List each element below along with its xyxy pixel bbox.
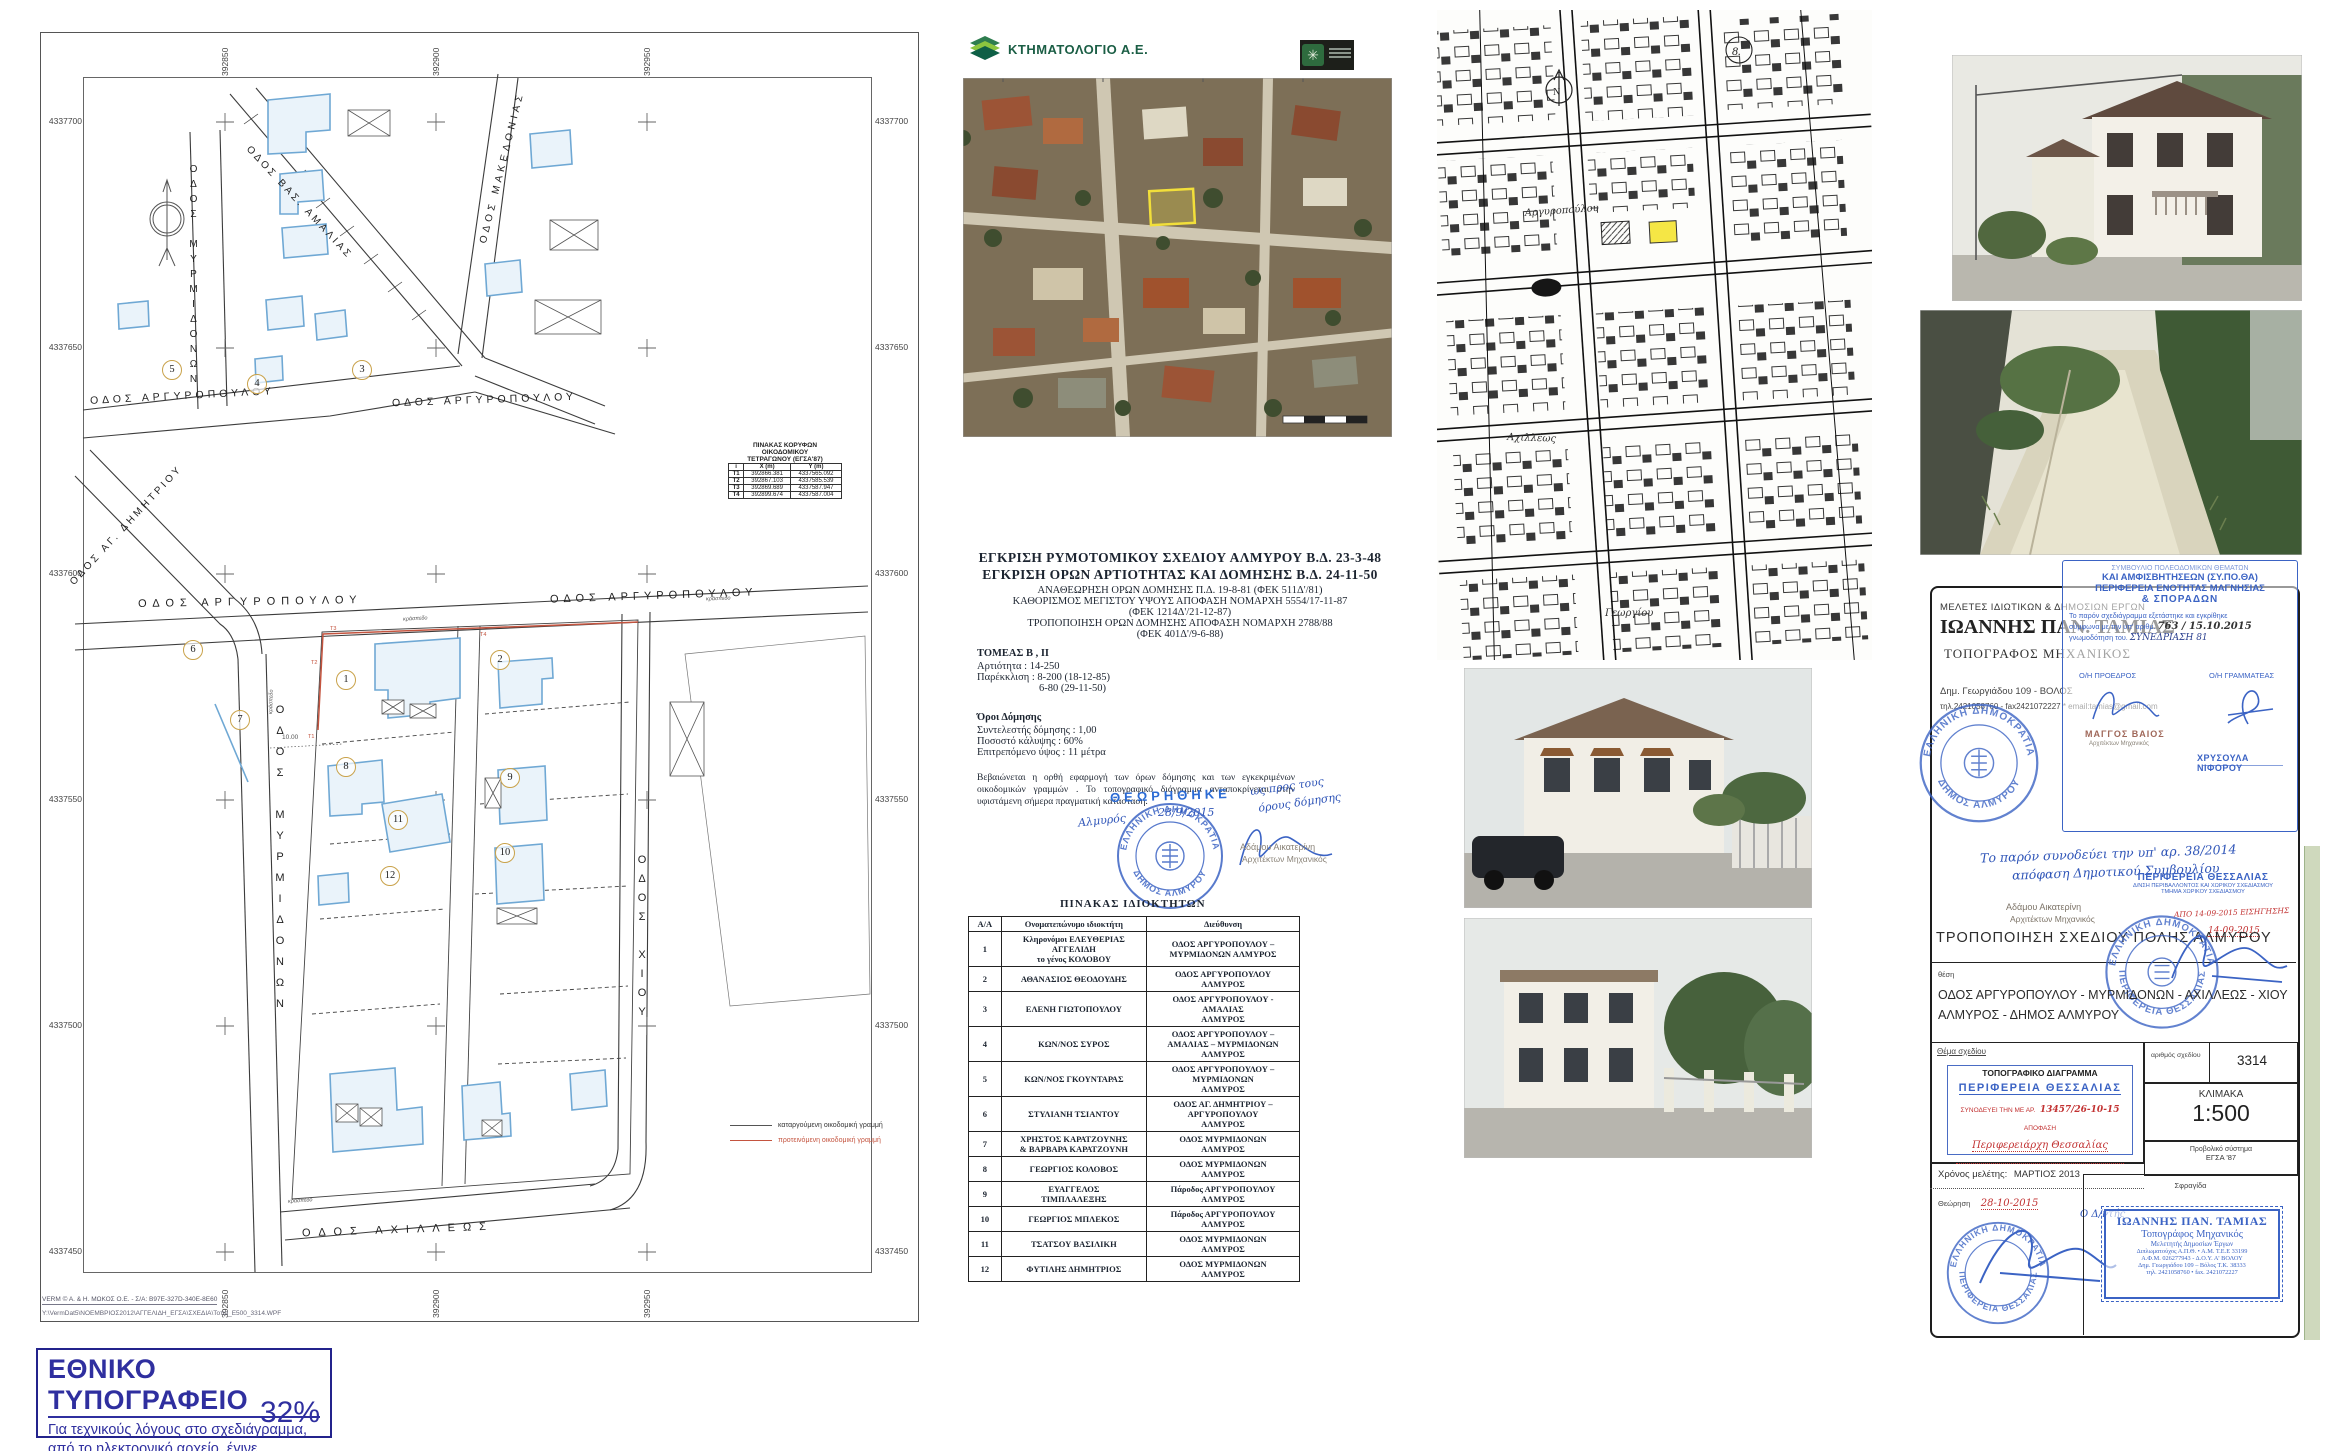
thessaly-directorate-stamp: ΠΕΡΙΦΕΡΕΙΑ ΘΕΣΣΑΛΙΑΣ Δ/ΝΣΗ ΠΕΡΙΒΑΛΛΟΝΤΟΣ…: [2118, 872, 2288, 895]
svg-text:T2: T2: [311, 660, 317, 666]
topo-stamp-line4: ΑΠΟΦΑΣΗ: [2024, 1125, 2056, 1132]
reviewer-title: Αρχιτέκτων Μηχανικός: [1242, 854, 1327, 864]
ministry-logo: ✳: [1300, 40, 1354, 70]
print-note-line2: από το ηλεκτρονικό αρχείο, έγινε: [48, 1441, 258, 1451]
terms-line-1: Συντελεστής δόμησης : 1,00: [977, 725, 1106, 736]
owner-row: 7ΧΡΗΣΤΟΣ ΚΑΡΑΤΖΟΥΝΗΣ & ΒΑΡΒΑΡΑ ΚΑΡΑΤΖΟΥΝ…: [969, 1132, 1300, 1157]
sypotha-body-1: Το παρόν σχεδιάγραμμα εξετάστηκε και εγκ…: [2069, 611, 2291, 620]
owner-row: 3ΕΛΕΝΗ ΓΙΩΤΟΠΟΥΛΟΥΟΔΟΣ ΑΡΓΥΡΟΠΟΥΛΟΥ - ΑΜ…: [969, 992, 1300, 1027]
municipality-round-stamp: ΕΛΛΗΝΙΚΗ ΔΗΜΟΚΡΑΤΙΑ ΔΗΜΟΣ ΑΛΜΥΡΟΥ: [1112, 798, 1228, 914]
thessaly-stamp-line3: ΤΜΗΜΑ ΧΩΡΙΚΟΥ ΣΧΕΔΙΑΣΜΟΥ: [2118, 889, 2288, 895]
topo-stamp-line1: ΤΟΠΟΓΡΑΦΙΚΟ ΔΙΑΓΡΑΜΜΑ: [1948, 1068, 2132, 1078]
photo-house-fence: [1464, 918, 1812, 1158]
sector-line-1: Αρτιότητα : 14-250: [977, 661, 1110, 672]
cadastral-street-label-2: Αχιλλέως: [1506, 432, 1557, 445]
plot-number-4: 4: [247, 374, 267, 394]
owner-row: 4ΚΩΝ/ΝΟΣ ΣΥΡΟΣΟΔΟΣ ΑΡΓΥΡΟΠΟΥΛΟΥ – ΑΜΑΛΙΑ…: [969, 1027, 1300, 1062]
sheet-edge-strip: [2304, 846, 2320, 1340]
seal-line7: τηλ. 2421058760 • fax. 2421072227: [2106, 1269, 2278, 1276]
scale-value: 1:500: [2145, 1100, 2297, 1127]
engineer-seal: ΙΩΑΝΝΗΣ ΠΑΝ. ΤΑΜΙΑΣ Τοπογράφος Μηχανικός…: [2104, 1209, 2280, 1299]
owner-row: 10ΓΕΩΡΓΙΟΣ ΜΠΛΕΚΟΣΠάροδος ΑΡΓΥΡΟΠΟΥΛΟΥ Α…: [969, 1207, 1300, 1232]
sypotha-session: ΣΥΝΕΔΡΙΑΣΗ 81: [2130, 633, 2208, 643]
topo-stamp-line2: ΠΕΡΙΦΕΡΕΙΑ ΘΕΣΣΑΛΙΑΣ: [1959, 1082, 2122, 1095]
plot-number-11: 11: [388, 810, 408, 830]
map-sheet: 4337700 4337650 4337600 4337550 4337500 …: [30, 14, 925, 1332]
vertex-row: T4392899.6744337587.004: [729, 492, 842, 499]
drawing-number-cell: αριθμός σχεδίου 3314: [2144, 1042, 2298, 1084]
seal-line1: ΙΩΑΝΝΗΣ ΠΑΝ. ΤΑΜΙΑΣ: [2106, 1214, 2278, 1229]
sector-line-2: Παρέκκλιση : 8-200 (18-12-85): [977, 672, 1110, 683]
sypotha-line-3: ΠΕΡΙΦΕΡΕΙΑ ΕΝΟΤΗΤΑΣ ΜΑΓΝΗΣΙΑΣ: [2063, 583, 2297, 594]
sypotha-stamp: ΣΥΜΒΟΥΛΙΟ ΠΟΛΕΟΔΟΜΙΚΩΝ ΘΕΜΑΤΩΝ ΚΑΙ ΑΜΦΙΣ…: [2062, 560, 2298, 832]
svg-text:N: N: [1553, 87, 1560, 98]
topo-stamp-line3: ΣΥΝΟΔΕΥΕΙ ΤΗΝ ΜΕ ΑΡ.: [1961, 1107, 2036, 1114]
owners-table-title: ΠΙΝΑΚΑΣ ΙΔΙΟΚΤΗΤΩΝ: [1060, 898, 1206, 910]
sheet-footer-line1: VERM © A. & H. ΜΩΚΟΣ Ο.Ε. - Σ/Α: B97E-32…: [42, 1296, 217, 1305]
sypotha-line-2: ΚΑΙ ΑΜΦΙΣΒΗΤΗΣΕΩΝ (ΣΥ.ΠΟ.ΘΑ): [2063, 572, 2297, 583]
topo-approval-stamp: ΤΟΠΟΓΡΑΦΙΚΟ ΔΙΑΓΡΑΜΜΑ ΠΕΡΙΦΕΡΕΙΑ ΘΕΣΣΑΛΙ…: [1947, 1065, 2133, 1155]
seal-label: Σφραγίδα: [2084, 1181, 2297, 1190]
vertex-row: T1392866.3814337565.092: [729, 471, 842, 478]
sypotha-secretary-name: ΧΡΥΣΟΥΛΑ ΝΙΦΟΡΟΥ: [2197, 753, 2297, 773]
terms-title: Όροι Δόμησης: [977, 712, 1106, 723]
scale-label: ΚΛΙΜΑΚΑ: [2145, 1089, 2297, 1100]
sheet-footer-line2: Y:\VermDat5\ΝΟΕΜΒΡΙΟΣ2012\ΑΓΓΕΛΙΔΗ_ΕΓΣΑ\…: [42, 1310, 281, 1317]
review-stamp-cluster: ΘΕΩΡΗΘΗΚΕ ως προς τους όρους δόμησης Αλμ…: [1050, 780, 1380, 910]
location-label: θέση: [1938, 970, 1954, 979]
study-value: ΜΑΡΤΙΟΣ 2013: [2014, 1169, 2080, 1180]
review-date-value: 28-10-2015: [1981, 1198, 2039, 1210]
region-signature: [2152, 918, 2292, 998]
sypotha-body-2: σύμφωνα με την υπ' αριθμ.: [2069, 622, 2156, 631]
approval-line-1: ΕΓΚΡΙΣΗ ΡΥΜΟΤΟΜΙΚΟΥ ΣΧΕΔΙΟΥ ΑΛΜΥΡΟΥ Β.Δ.…: [965, 550, 1395, 566]
sypotha-decision-number: 763 / 15.10.2015: [2158, 621, 2252, 632]
owner-row: 2ΑΘΑΝΑΣΙΟΣ ΘΕΟΔΟΥΔΗΣΟΔΟΣ ΑΡΓΥΡΟΠΟΥΛΟΥ ΑΛ…: [969, 967, 1300, 992]
vertex-table: ΠΙΝΑΚΑΣ ΚΟΡΥΦΩΝ ΟΙΚΟΔΟΜΙΚΟΥ ΤΕΤΡΑΓΩΝΟΥ (…: [728, 442, 842, 499]
photo-scalebar: [1283, 416, 1367, 423]
engineer-address: Δημ. Γεωργιάδου 109 - ΒΟΛΟΣ: [1940, 686, 2073, 697]
dim-label: 10.00: [282, 734, 298, 741]
svg-text:ΔΗΜΟΣ ΑΛΜΥΡΟΥ: ΔΗΜΟΣ ΑΛΜΥΡΟΥ: [1935, 777, 2023, 811]
subject-label: Θέμα σχεδίου: [1937, 1047, 1986, 1056]
scanned-topographic-document: 4337700 4337650 4337600 4337550 4337500 …: [0, 0, 2326, 1451]
adamou-title: Αρχιτέκτων Μηχανικός: [2010, 914, 2095, 924]
adamou-name: Αδάμου Αικατερίνη: [2006, 902, 2081, 912]
approval-line-4: ΚΑΘΟΡΙΣΜΟΣ ΜΕΓΙΣΤΟΥ ΥΨΟΥΣ ΑΠΟΦΑΣΗ ΝΟΜΑΡΧ…: [965, 596, 1395, 607]
plot-number-7: 7: [230, 710, 250, 730]
legend-line-proposed: [730, 1140, 772, 1141]
plot-number-8: 8: [336, 757, 356, 777]
terms-block: Όροι Δόμησης Συντελεστής δόμησης : 1,00 …: [977, 712, 1106, 758]
ktimatologio-logo-icon: [970, 36, 1000, 60]
cadastral-highlighted-parcel: [1649, 221, 1677, 243]
svg-text:T4: T4: [480, 632, 486, 638]
highlighted-parcel: [1149, 189, 1195, 225]
curb-label-1: κράσπεδο: [403, 615, 428, 622]
sypotha-line-1: ΣΥΜΒΟΥΛΙΟ ΠΟΛΕΟΔΟΜΙΚΩΝ ΘΕΜΑΤΩΝ: [2063, 565, 2297, 572]
cadastral-map-scan: N 8. Αργυροπούλου Αχιλλέως Γεωργίου: [1437, 10, 1872, 660]
seal-line6: Δημ. Γεωργιάδου 109 – Βόλος Τ.Κ. 38333: [2106, 1262, 2278, 1269]
sypotha-line-4: & ΣΠΟΡΑΔΩΝ: [2063, 594, 2297, 605]
projection-cell: Προβολικό σύστημα ΕΓΣΑ '87: [2144, 1140, 2298, 1176]
reviewer-name: Αδάμου Αικατερίνη: [1240, 842, 1315, 852]
study-label: Χρόνος μελέτης:: [1938, 1169, 2007, 1180]
photo-house-balcony: [1952, 55, 2302, 301]
owner-row: 12ΦΥΤΙΛΗΣ ΔΗΜΗΤΡΙΟΣΟΔΟΣ ΜΥΡΜΙΔΟΝΩΝ ΑΛΜΥΡ…: [969, 1257, 1300, 1282]
seal-cell: Σφραγίδα ΙΩΑΝΝΗΣ ΠΑΝ. ΤΑΜΙΑΣ Τοπογράφος …: [2083, 1174, 2297, 1335]
plot-number-10: 10: [495, 843, 515, 863]
terms-line-3: Επιτρεπόμενο ύψος : 11 μέτρα: [977, 747, 1106, 758]
plot-number-2: 2: [490, 650, 510, 670]
owner-row: 5ΚΩΝ/ΝΟΣ ΓΚΟΥΝΤΑΡΑΣΟΔΟΣ ΑΡΓΥΡΟΠΟΥΛΟΥ – Μ…: [969, 1062, 1300, 1097]
titleblock: ΜΕΛΕΤΕΣ ΙΔΙΩΤΙΚΩΝ & ΔΗΜΟΣΙΩΝ ΕΡΓΩΝ ΙΩΑΝΝ…: [1922, 558, 2322, 1350]
photo-house-corner: [1464, 668, 1812, 908]
ktimatologio-brand: ΚΤΗΜΑΤΟΛΟΓΙΟ Α.Ε.: [1008, 42, 1148, 57]
seal-line4: Διπλωματούχος Α.Π.Θ. • Α.Μ. Τ.Ε.Ε 33199: [2106, 1248, 2278, 1255]
print-office-note: ΕΘΝΙΚΟ ΤΥΠΟΓΡΑΦΕΙΟ Για τεχνικούς λόγους …: [36, 1348, 332, 1438]
projection-value: ΕΓΣΑ '87: [2145, 1153, 2297, 1162]
projection-label: Προβολικό σύστημα: [2145, 1146, 2297, 1153]
municipal-round-stamp-titleblock: ΕΛΛΗΝΙΚΗ ΔΗΜΟΚΡΑΤΙΑ ΔΗΜΟΣ ΑΛΜΥΡΟΥ: [1914, 698, 2044, 828]
sector-block: ΤΟΜΕΑΣ Β , ΙΙ Αρτιότητα : 14-250 Παρέκκλ…: [977, 648, 1110, 694]
secretary-signature: [2213, 679, 2283, 729]
review-label: Θεώρηση: [1938, 1199, 1970, 1208]
topo-stamp-number: 13457/26-10-15: [2040, 1105, 2120, 1115]
plot-number-6: 6: [183, 640, 203, 660]
plot-number-3: 3: [352, 360, 372, 380]
owners-header-row: Α/Α Ονοματεπώνυμο ιδιοκτήτη Διεύθυνση: [969, 917, 1300, 932]
legend-label-existing: καταργούμενη οικοδομική γραμμή: [778, 1122, 883, 1129]
approval-line-2: ΕΓΚΡΙΣΗ ΟΡΩΝ ΑΡΤΙΟΤΗΤΑΣ ΚΑΙ ΔΟΜΗΣΗΣ Β.Δ.…: [965, 567, 1395, 583]
thessaly-stamp-line1: ΠΕΡΙΦΕΡΕΙΑ ΘΕΣΣΑΛΙΑΣ: [2118, 872, 2288, 883]
terms-line-2: Ποσοστό κάλυψης : 60%: [977, 736, 1106, 747]
orthophoto: [963, 78, 1392, 437]
print-note-percent: 32%: [260, 1396, 320, 1430]
owner-row: 6ΣΤΥΛΙΑΝΗ ΤΣΙΑΝΤΟΥΟΔΟΣ ΑΓ. ΔΗΜΗΤΡΙΟΥ – Α…: [969, 1097, 1300, 1132]
map-legend: καταργούμενη οικοδομική γραμμή προτεινόμ…: [730, 1122, 883, 1144]
svg-text:ΕΛΛΗΝΙΚΗ ΔΗΜΟΚΡΑΤΙΑ: ΕΛΛΗΝΙΚΗ ΔΗΜΟΚΡΑΤΙΑ: [1118, 804, 1221, 851]
owners-table: Α/Α Ονοματεπώνυμο ιδιοκτήτη Διεύθυνση 1Κ…: [968, 916, 1300, 1282]
president-signature: [2083, 679, 2163, 729]
svg-text:T3: T3: [330, 626, 336, 632]
scale-cell: ΚΛΙΜΑΚΑ 1:500: [2144, 1082, 2298, 1142]
drawing-number-label: αριθμός σχεδίου: [2151, 1051, 2203, 1060]
plot-number-5: 5: [162, 360, 182, 380]
subject-cell: Θέμα σχεδίου ΤΟΠΟΓΡΑΦΙΚΟ ΔΙΑΓΡΑΜΜΑ ΠΕΡΙΦ…: [1930, 1042, 2144, 1164]
seal-line2: Τοπογράφος Μηχανικός: [2106, 1229, 2278, 1240]
photo-alley: [1920, 310, 2302, 555]
owner-row: 11ΤΣΑΤΣΟΥ ΒΑΣΙΛΙΚΗΟΔΟΣ ΜΥΡΜΙΔΟΝΩΝ ΑΛΜΥΡΟ…: [969, 1232, 1300, 1257]
vertex-row: T2392867.1034337585.539: [729, 478, 842, 485]
vertex-row: T3392869.6894337587.947: [729, 485, 842, 492]
north-arrow-icon: [150, 180, 184, 266]
drawing-number-value: 3314: [2209, 1053, 2295, 1068]
cadastral-street-label-3: Γεωργίου: [1604, 608, 1653, 619]
svg-text:8.: 8.: [1732, 44, 1741, 58]
plot-number-1: 1: [336, 670, 356, 690]
curb-label-2: κράσπεδο: [706, 596, 731, 603]
ministry-emblem-icon: ✳: [1302, 44, 1324, 66]
street-label-myrmidonon-upper: ΟΔΟΣ ΜΥΡΜΙΔΟΝΩΝ: [188, 164, 199, 404]
sypotha-president-sub: Αρχιτέκτων Μηχανικός: [2089, 741, 2149, 747]
approval-line-6: ΤΡΟΠΟΠΟΙΗΣΗ ΟΡΩΝ ΔΟΜΗΣΗΣ ΑΠΟΦΑΣΗ ΝΟΜΑΡΧΗ…: [965, 618, 1395, 629]
legend-line-existing: [730, 1125, 772, 1126]
sector-title: ΤΟΜΕΑΣ Β , ΙΙ: [977, 648, 1110, 659]
curb-label-4: κράσπεδο: [268, 689, 275, 714]
sypotha-body-3: γνωμοδότηση του.: [2069, 633, 2128, 642]
topo-stamp-hand: Περιφερειάρχη Θεσσαλίας: [1972, 1140, 2108, 1152]
owner-row: 9ΕΥΑΓΓΕΛΟΣ ΤΙΜΠΛΑΛΕΞΗΣΠάροδος ΑΡΓΥΡΟΠΟΥΛ…: [969, 1182, 1300, 1207]
owner-row: 1Κληρονόμοι ΕΛΕΥΘΕΡΙΑΣ ΑΓΓΕΛΙΔΗ το γένος…: [969, 932, 1300, 967]
sector-line-3: 6-80 (29-11-50): [1039, 683, 1110, 694]
legend-label-proposed: προτεινόμενη οικοδομική γραμμή: [778, 1137, 881, 1144]
location-line2: ΑΛΜΥΡΟΣ - ΔΗΜΟΣ ΑΛΜΥΡΟΥ: [1938, 1008, 2119, 1022]
seal-line5: Α.Φ.Μ. 026277943 - Δ.Ο.Υ. Α' ΒΟΛΟΥ: [2106, 1255, 2278, 1262]
owner-row: 8ΓΕΩΡΓΙΟΣ ΚΟΛΟΒΟΣΟΔΟΣ ΜΥΡΜΙΔΟΝΩΝ ΑΛΜΥΡΟΣ: [969, 1157, 1300, 1182]
approvals-block: ΕΓΚΡΙΣΗ ΡΥΜΟΤΟΜΙΚΟΥ ΣΧΕΔΙΟΥ ΑΛΜΥΡΟΥ Β.Δ.…: [965, 550, 1395, 640]
approval-line-5: (ΦΕΚ 1214Δ'/21-12-87): [965, 607, 1395, 618]
street-label-chiou: ΟΔΟΣ ΧΙΟΥ: [636, 854, 648, 1034]
ktimatologio-header: ΚΤΗΜΑΤΟΛΟΓΙΟ Α.Ε. ✳: [970, 30, 1400, 76]
svg-text:T1: T1: [308, 734, 314, 740]
approval-line-7: (ΦΕΚ 401Δ'/9-6-88): [965, 629, 1395, 640]
approval-line-3: ΑΝΑΘΕΩΡΗΣΗ ΟΡΩΝ ΔΟΜΗΣΗΣ Π.Δ. 19-8-81 (ΦΕ…: [965, 585, 1395, 596]
seal-line3: Μελετητής Δημοσίων Έργων: [2106, 1240, 2278, 1248]
svg-text:ΔΗΜΟΣ ΑΛΜΥΡΟΥ: ΔΗΜΟΣ ΑΛΜΥΡΟΥ: [1131, 868, 1208, 898]
sypotha-president-name: ΜΑΓΓΟΣ ΒΑΙΟΣ: [2085, 729, 2165, 739]
vertex-table-title: ΠΙΝΑΚΑΣ ΚΟΡΥΦΩΝ: [753, 442, 817, 449]
street-label-myrmidonon-lower: ΟΔΟΣ ΜΥΡΜΙΔΟΝΩΝ: [274, 704, 286, 1084]
plot-number-12: 12: [380, 866, 400, 886]
location-line1: ΟΔΟΣ ΑΡΓΥΡΟΠΟΥΛΟΥ - ΜΥΡΜΙΔΟΝΩΝ - ΑΧΙΛΛΕΩ…: [1938, 988, 2288, 1002]
plot-number-9: 9: [500, 768, 520, 788]
